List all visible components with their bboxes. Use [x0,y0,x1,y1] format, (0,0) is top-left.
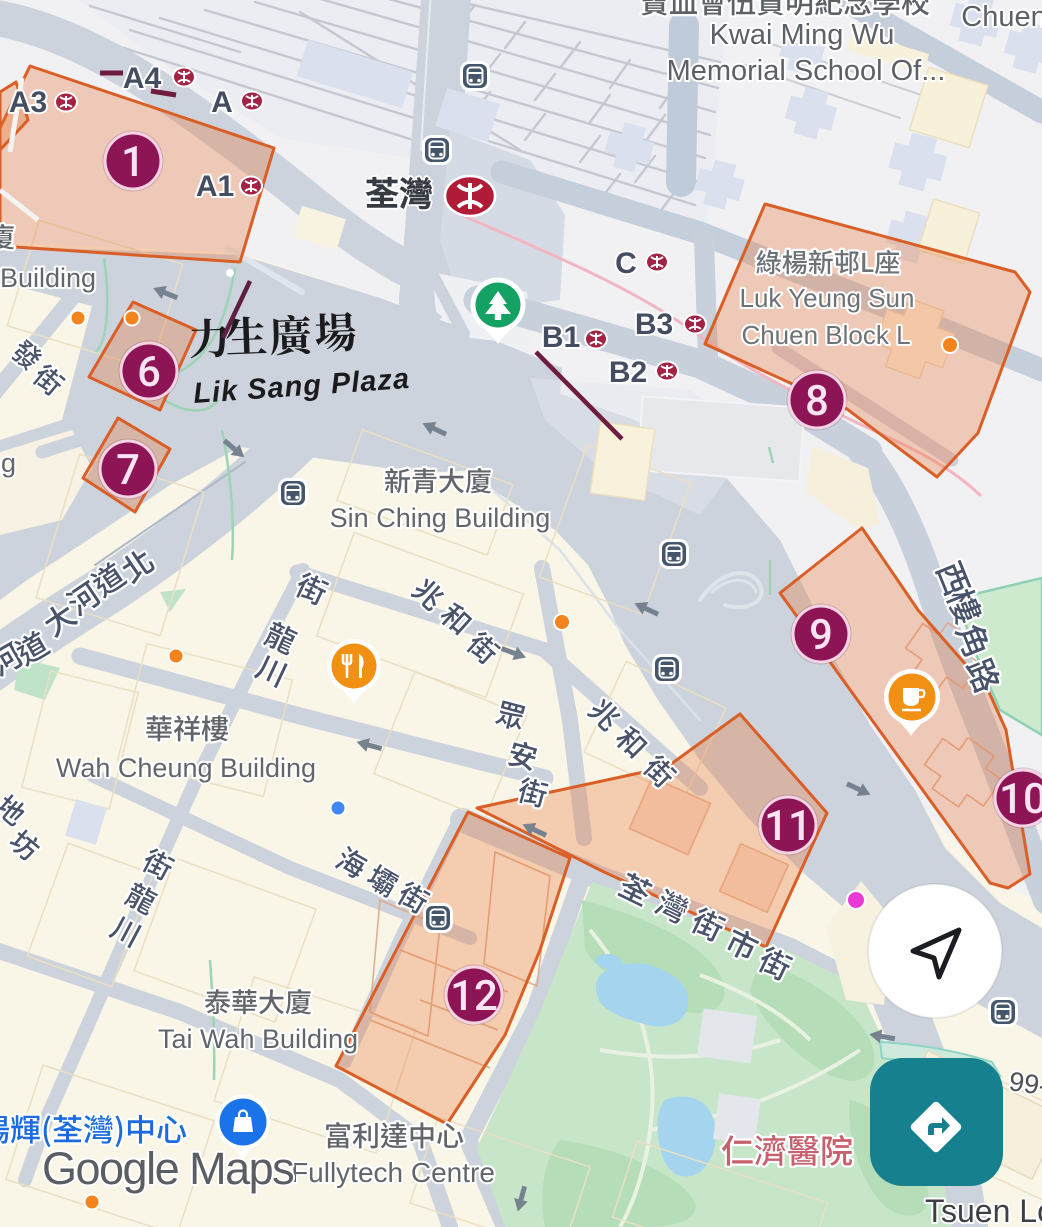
svg-text:A1: A1 [196,170,234,203]
svg-text:Wah Cheung Building: Wah Cheung Building [56,753,316,783]
svg-text:Fullytech Centre: Fullytech Centre [291,1157,495,1188]
svg-text:Building: Building [0,263,96,293]
svg-text:Kwai Ming Wu: Kwai Ming Wu [710,19,895,51]
svg-text:B2: B2 [609,356,647,389]
svg-text:Chuen: Chuen [961,1,1042,33]
svg-text:ng: ng [0,448,16,478]
svg-text:Memorial School Of...: Memorial School Of... [667,55,946,87]
svg-text:Luk Yeung Sun: Luk Yeung Sun [740,283,915,313]
svg-text:Sin Ching Building: Sin Ching Building [330,503,551,533]
svg-text:Chuen Block L: Chuen Block L [741,320,910,350]
svg-text:A3: A3 [9,86,47,119]
svg-text:Tai Wah Building: Tai Wah Building [158,1024,358,1054]
svg-text:C: C [615,247,637,280]
svg-text:B3: B3 [635,308,673,341]
svg-text:A: A [211,86,233,119]
svg-text:Tsuen Lok: Tsuen Lok [925,1193,1042,1227]
svg-text:99-: 99- [1007,1066,1042,1101]
svg-text:Google Maps: Google Maps [42,1143,293,1194]
svg-text:B1: B1 [542,321,580,354]
